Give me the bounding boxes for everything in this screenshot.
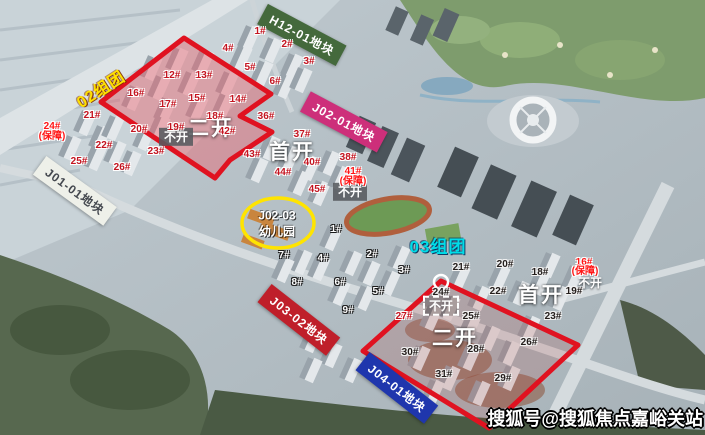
building-label: 2# <box>281 40 292 50</box>
watermark: 搜狐号@搜狐焦点嘉峪关站 <box>487 405 703 431</box>
kindergarten-name: 幼儿园 <box>258 224 295 240</box>
building-label: 6# <box>334 278 345 288</box>
plot-banner-j03-02: J03-02地块 <box>257 284 340 356</box>
building-label: 14# <box>230 95 247 105</box>
annotation-layer: H12-01地块 J02-01地块 J01-01地块 J03-02地块 J04-… <box>0 0 705 435</box>
building-label: 22# <box>490 287 507 297</box>
building-label: 9# <box>342 306 353 316</box>
building-label: 40# <box>304 158 321 168</box>
building-label: 21# <box>84 111 101 121</box>
building-label: 19# <box>168 123 185 133</box>
plot-banner-h12-01: H12-01地块 <box>257 4 347 66</box>
phase-label-shoukai-east: 首开 <box>518 279 564 309</box>
building-label: 38# <box>340 153 357 163</box>
building-label: 2# <box>366 250 377 260</box>
building-label: 18# <box>532 268 549 278</box>
plot-banner-j04-01: J04-01地块 <box>355 352 438 424</box>
building-label: 26# <box>114 163 131 173</box>
building-label: 24# <box>433 288 450 298</box>
building-label: 36# <box>258 112 275 122</box>
building-label: 42# <box>219 127 236 137</box>
building-label: 16# <box>128 89 145 99</box>
building-label: 25# <box>71 157 88 167</box>
building-label: 8# <box>291 278 302 288</box>
building-label: 45# <box>309 185 326 195</box>
building-label: (保障) <box>39 132 66 142</box>
zone-label-02: 02组团 <box>71 63 129 112</box>
building-label: 20# <box>131 125 148 135</box>
building-label: 26# <box>521 338 538 348</box>
building-label: 12# <box>164 71 181 81</box>
building-label: 25# <box>463 312 480 322</box>
building-label: (保障) <box>572 267 599 277</box>
building-label: 21# <box>453 263 470 273</box>
building-label: 23# <box>545 312 562 322</box>
building-label: 7# <box>278 251 289 261</box>
building-label: 23# <box>148 147 165 157</box>
building-label: 27# <box>396 312 413 322</box>
building-label: 28# <box>468 345 485 355</box>
building-label: (保障) <box>340 177 367 187</box>
building-label: 5# <box>244 63 255 73</box>
building-label: 30# <box>402 348 419 358</box>
kindergarten-label: J02-03 幼儿园 <box>258 208 295 239</box>
building-label: 44# <box>275 168 292 178</box>
kindergarten-plot-code: J02-03 <box>258 208 295 224</box>
building-label: 6# <box>269 77 280 87</box>
building-label: 22# <box>96 141 113 151</box>
aerial-site-plan: H12-01地块 J02-01地块 J01-01地块 J03-02地块 J04-… <box>0 0 705 435</box>
building-label: 3# <box>398 266 409 276</box>
zone-label-03: 03组团 <box>410 233 467 258</box>
building-label: 4# <box>317 254 328 264</box>
building-label: 31# <box>436 370 453 380</box>
building-label: 37# <box>294 130 311 140</box>
building-label: 3# <box>303 57 314 67</box>
building-label: 19# <box>566 287 583 297</box>
building-label: 20# <box>497 260 514 270</box>
building-label: 15# <box>189 94 206 104</box>
building-label: 4# <box>222 44 233 54</box>
building-label: 13# <box>196 71 213 81</box>
building-label: 17# <box>160 100 177 110</box>
building-label: 1# <box>330 225 341 235</box>
not-open-label-south: 不开 <box>423 296 459 316</box>
building-label: 43# <box>244 150 261 160</box>
building-label: 29# <box>495 374 512 384</box>
building-label: 18# <box>207 112 224 122</box>
building-label: 5# <box>372 287 383 297</box>
building-label: 1# <box>254 27 265 37</box>
